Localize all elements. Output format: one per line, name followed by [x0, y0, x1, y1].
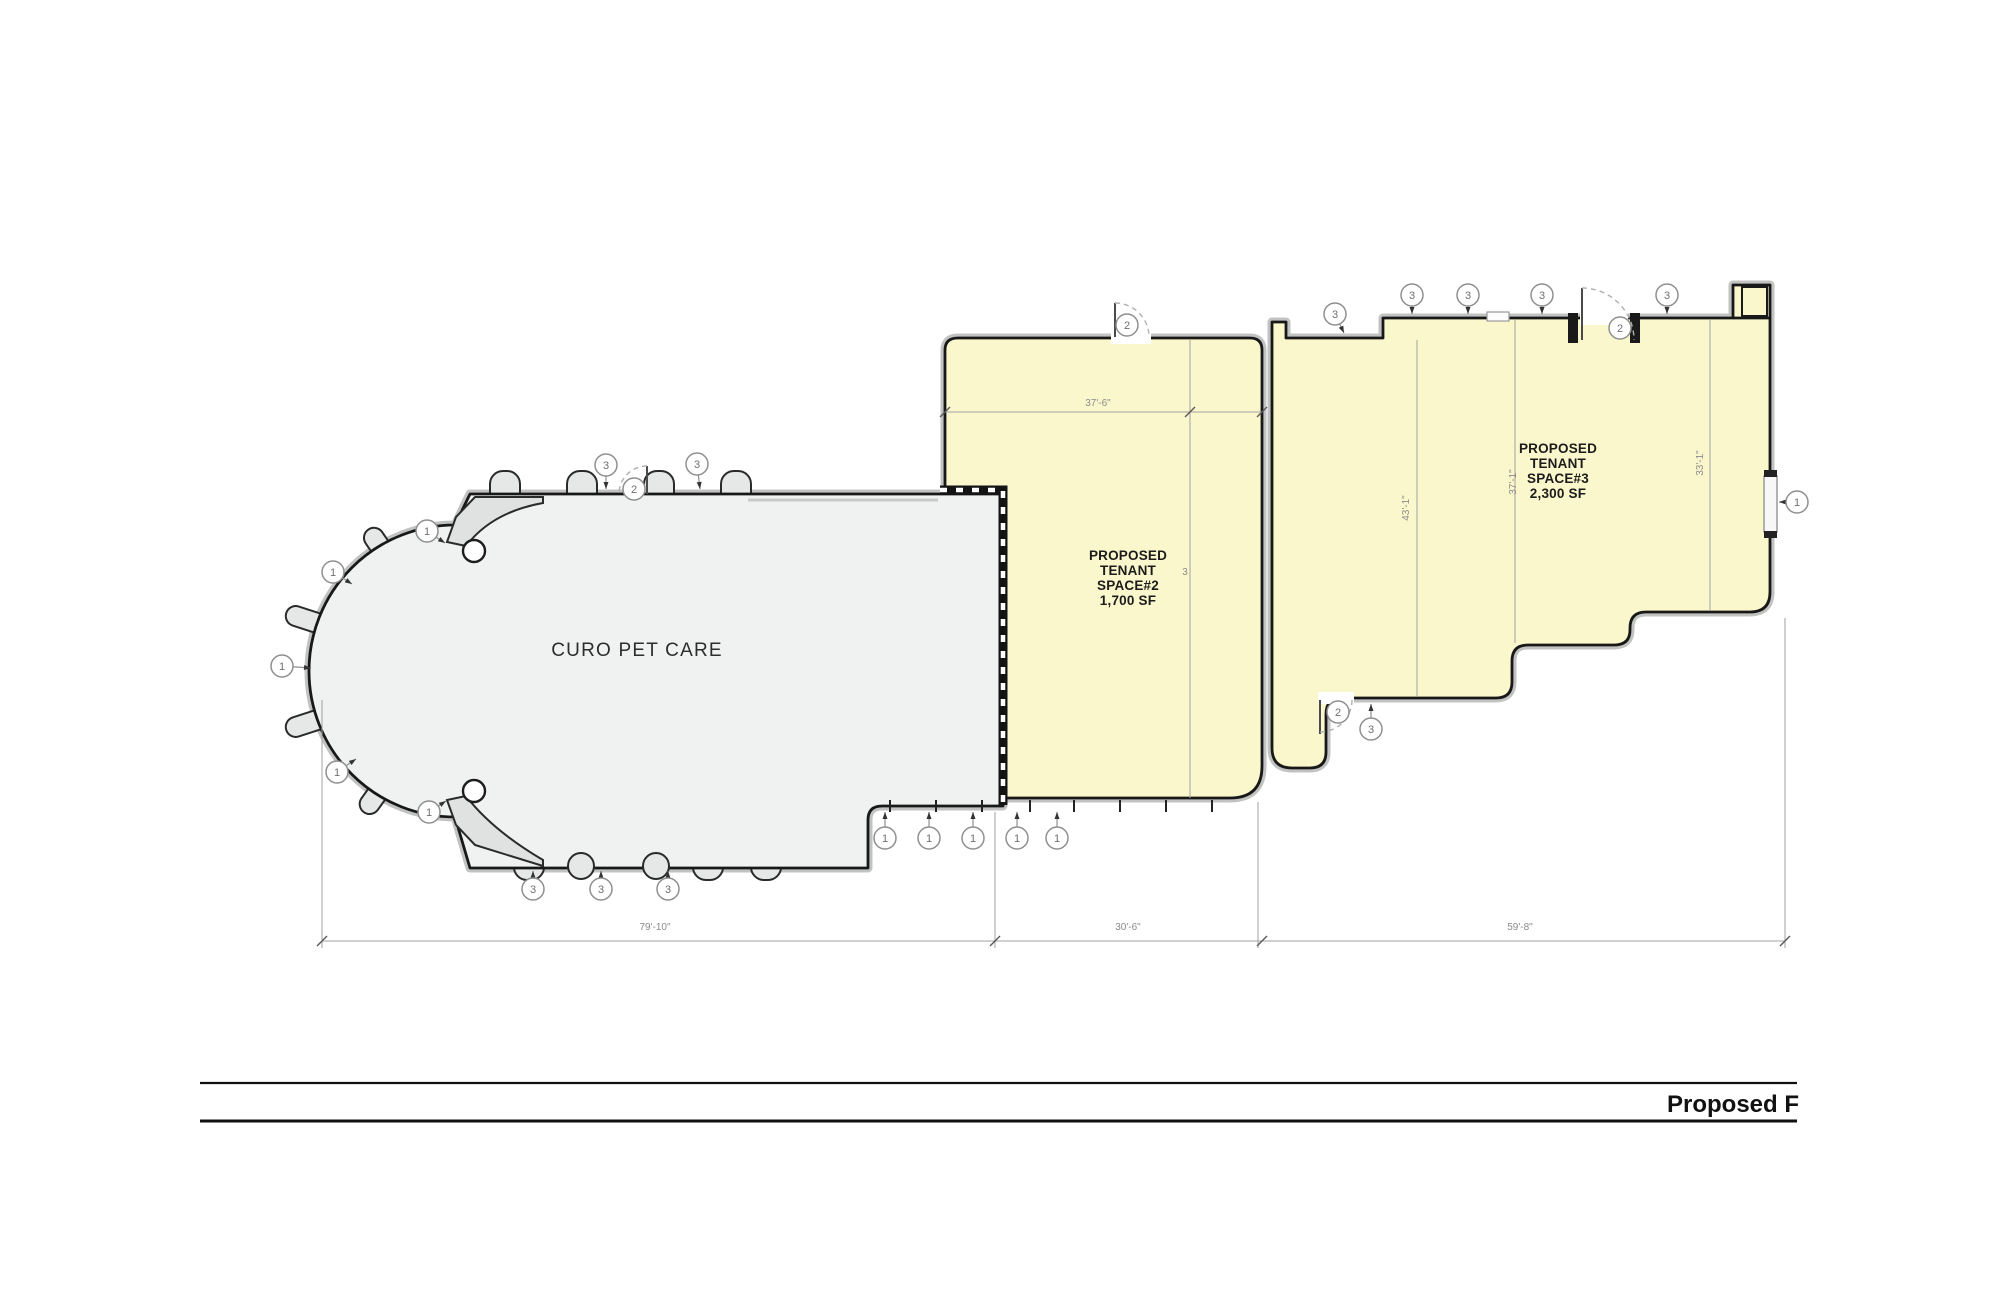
dimension-text: 30'-6": [1115, 922, 1141, 933]
round-column: [568, 853, 594, 879]
keynote-arrowhead: [1015, 812, 1020, 819]
keynote-number: 2: [1617, 323, 1623, 335]
keynote-arrowhead: [1779, 500, 1786, 505]
curo-space: [283, 466, 1003, 880]
keynote-number: 3: [1368, 724, 1374, 736]
curo-space-label: CURO PET CARE: [551, 640, 723, 661]
keynote-number: 1: [279, 661, 285, 673]
svg-text:PROPOSED: PROPOSED: [1089, 548, 1167, 563]
keynote-number: 1: [1794, 497, 1800, 509]
title-block: Proposed F: [200, 1083, 1799, 1121]
keynote-number: 1: [424, 526, 430, 538]
space3-label: PROPOSED TENANT SPACE#3 2,300 SF: [1519, 441, 1597, 501]
window-end-block: [1764, 531, 1777, 538]
keynote-arrowhead: [971, 812, 976, 819]
svg-text:SPACE#2: SPACE#2: [1097, 578, 1159, 593]
svg-text:TENANT: TENANT: [1100, 563, 1156, 578]
sheet-title: Proposed F: [1667, 1091, 1799, 1118]
dimension-text: 3: [1182, 567, 1188, 578]
dimension-text: 79'-10": [639, 922, 670, 933]
storefront-window: [1487, 312, 1509, 321]
keynote-number: 1: [1054, 833, 1060, 845]
dimension-text: 37'-1": [1508, 469, 1519, 495]
keynote-arrowhead: [1410, 307, 1415, 314]
keynote-number: 1: [330, 567, 336, 579]
keynote-arrowhead: [1055, 812, 1060, 819]
keynote-arrowhead: [1466, 307, 1471, 314]
keynote-number: 1: [970, 833, 976, 845]
keynote-number: 3: [665, 884, 671, 896]
chamfer-column: [463, 780, 485, 802]
door-jamb: [1568, 313, 1578, 343]
keynote-number: 3: [598, 884, 604, 896]
keynote-number: 3: [1332, 309, 1338, 321]
tenant-space3: [1272, 285, 1777, 768]
keynote-arrowhead: [697, 482, 702, 489]
keynote-arrowhead: [1369, 704, 1374, 711]
keynote-number: 3: [694, 459, 700, 471]
keynote-arrowhead: [1339, 326, 1344, 333]
right-wall-window: [1764, 476, 1777, 532]
keynote-number: 1: [334, 767, 340, 779]
keynote-number: 2: [1335, 707, 1341, 719]
svg-text:PROPOSED: PROPOSED: [1519, 441, 1597, 456]
keynote-number: 3: [603, 460, 609, 472]
keynote-number: 3: [1465, 290, 1471, 302]
keynote-number: 1: [426, 807, 432, 819]
keynote-arrowhead: [1540, 307, 1545, 314]
dimension-text: 37'-6": [1085, 398, 1111, 409]
floor-plan-drawing: 79'-10"30'-6"59'-8"37'-6"43'-1"37'-1"33'…: [0, 0, 2000, 1294]
keynote-arrowhead: [1665, 307, 1670, 314]
svg-text:SPACE#3: SPACE#3: [1527, 471, 1589, 486]
keynote-number: 3: [1664, 290, 1670, 302]
keynote-number: 1: [1014, 833, 1020, 845]
curo-wall-outline: [309, 494, 1003, 868]
svg-text:1,700 SF: 1,700 SF: [1100, 593, 1156, 608]
keynote-number: 3: [1539, 290, 1545, 302]
keynote-number: 3: [530, 884, 536, 896]
space2-label: PROPOSED TENANT SPACE#2 1,700 SF: [1089, 548, 1167, 608]
keynote-number: 2: [631, 484, 637, 496]
dimension-text: 33'-1": [1695, 450, 1706, 476]
svg-text:2,300 SF: 2,300 SF: [1530, 486, 1586, 501]
chamfer-column: [463, 540, 485, 562]
keynote-arrowhead: [883, 812, 888, 819]
keynote-arrowhead: [604, 482, 609, 489]
dimension-text: 43'-1": [1401, 495, 1412, 521]
keynote-number: 1: [926, 833, 932, 845]
keynote-number: 3: [1409, 290, 1415, 302]
keynote-arrowhead: [927, 812, 932, 819]
svg-text:TENANT: TENANT: [1530, 456, 1586, 471]
dimension-text: 59'-8": [1507, 922, 1533, 933]
keynote-number: 1: [882, 833, 888, 845]
keynote-number: 2: [1124, 320, 1130, 332]
round-column: [643, 853, 669, 879]
window-end-block: [1764, 470, 1777, 477]
